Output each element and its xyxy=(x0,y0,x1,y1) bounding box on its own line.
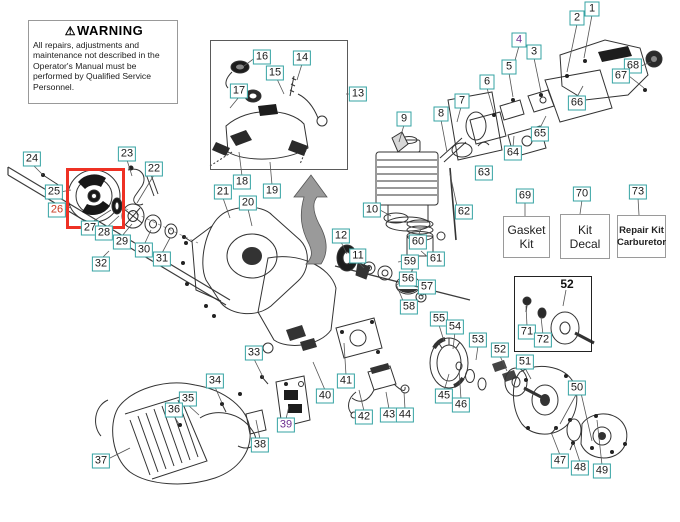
part-label-20[interactable]: 20 xyxy=(239,196,257,211)
warning-text: All repairs, adjustments and maintenance… xyxy=(33,40,175,92)
part-label-9[interactable]: 9 xyxy=(397,112,412,127)
part-label-21[interactable]: 21 xyxy=(214,185,232,200)
part-label-63[interactable]: 63 xyxy=(475,166,493,181)
part-label-40[interactable]: 40 xyxy=(316,389,334,404)
part-label-10[interactable]: 10 xyxy=(363,203,381,218)
crankcase-cover xyxy=(513,366,576,434)
warning-box: ⚠WARNING All repairs, adjustments and ma… xyxy=(28,20,178,104)
rotation-arrow xyxy=(294,175,327,264)
part-label-33[interactable]: 33 xyxy=(245,346,263,361)
part-label-11[interactable]: 11 xyxy=(349,249,366,264)
part-label-54[interactable]: 54 xyxy=(446,320,464,335)
part-label-47[interactable]: 47 xyxy=(551,454,569,469)
part-label-36[interactable]: 36 xyxy=(165,403,183,418)
part-label-22[interactable]: 22 xyxy=(145,162,163,177)
warning-icon: ⚠ xyxy=(65,24,76,38)
part-label-17[interactable]: 17 xyxy=(230,84,248,99)
part-label-46[interactable]: 46 xyxy=(452,398,470,413)
gear-head-group xyxy=(551,414,627,458)
part-label-15[interactable]: 15 xyxy=(266,66,284,81)
part-label-18[interactable]: 18 xyxy=(233,175,251,190)
part-label-65[interactable]: 65 xyxy=(531,127,549,142)
part-label-42[interactable]: 42 xyxy=(355,410,373,425)
part-label-62[interactable]: 62 xyxy=(455,205,473,220)
part-label-61[interactable]: 61 xyxy=(427,252,445,267)
parts-diagram-page: ⚠WARNING All repairs, adjustments and ma… xyxy=(0,0,680,522)
repair-kit-label-line1: Repair Kit xyxy=(619,225,664,237)
part-label-52[interactable]: 52 xyxy=(491,343,509,358)
part-label-41[interactable]: 41 xyxy=(337,374,355,389)
part-label-49[interactable]: 49 xyxy=(593,464,611,479)
repair-kit-label-line2: Carburetor xyxy=(617,237,666,249)
part-label-60[interactable]: 60 xyxy=(409,235,427,250)
part-label-14[interactable]: 14 xyxy=(293,51,311,66)
kit-decal-box[interactable]: Kit Decal xyxy=(560,214,610,259)
part-label-31[interactable]: 31 xyxy=(153,252,171,267)
starter-assembly xyxy=(68,170,122,222)
part-label-29[interactable]: 29 xyxy=(113,235,131,250)
part-label-44[interactable]: 44 xyxy=(396,408,414,423)
part-label-73[interactable]: 73 xyxy=(629,185,647,200)
part-label-6[interactable]: 6 xyxy=(480,75,495,90)
part-label-26[interactable]: 26 xyxy=(48,203,66,218)
part-label-53[interactable]: 53 xyxy=(469,333,487,348)
part-label-23[interactable]: 23 xyxy=(118,147,136,162)
part-label-24[interactable]: 24 xyxy=(23,152,41,167)
part-label-12[interactable]: 12 xyxy=(332,229,350,244)
part-label-51[interactable]: 51 xyxy=(516,355,534,370)
part-label-39[interactable]: 39 xyxy=(277,418,295,433)
fuel-tank-subdiagram-frame xyxy=(210,40,348,170)
part-label-7[interactable]: 7 xyxy=(455,94,470,109)
part-label-72[interactable]: 72 xyxy=(534,333,552,348)
part-label-50[interactable]: 50 xyxy=(568,381,586,396)
part-label-3[interactable]: 3 xyxy=(527,45,542,60)
crankshaft-subdiagram-frame xyxy=(514,276,592,352)
part-label-30[interactable]: 30 xyxy=(135,243,153,258)
part-label-25[interactable]: 25 xyxy=(45,185,63,200)
part-label-2[interactable]: 2 xyxy=(570,11,585,26)
carburetor-repair-kit-box[interactable]: Repair Kit Carburetor xyxy=(617,215,666,258)
part-label-64[interactable]: 64 xyxy=(504,146,522,161)
part-label-45[interactable]: 45 xyxy=(435,389,453,404)
part-label-32[interactable]: 32 xyxy=(92,257,110,272)
subdiagram-part-number: 52 xyxy=(560,277,573,291)
part-label-37[interactable]: 37 xyxy=(92,454,110,469)
cylinder xyxy=(376,137,456,241)
part-label-56[interactable]: 56 xyxy=(399,272,417,287)
ignition-group xyxy=(336,318,409,418)
part-label-38[interactable]: 38 xyxy=(251,438,269,453)
gasket-kit-label-line1: Gasket xyxy=(507,223,545,237)
gasket-kit-box[interactable]: Gasket Kit xyxy=(503,216,550,258)
part-label-67[interactable]: 67 xyxy=(612,69,630,84)
part-label-4[interactable]: 4 xyxy=(512,33,527,48)
part-label-34[interactable]: 34 xyxy=(206,374,224,389)
part-label-28[interactable]: 28 xyxy=(95,226,113,241)
gasket-kit-label-line2: Kit xyxy=(519,237,533,251)
part-label-48[interactable]: 48 xyxy=(571,461,589,476)
part-label-59[interactable]: 59 xyxy=(401,255,419,270)
part-label-70[interactable]: 70 xyxy=(573,187,591,202)
part-label-66[interactable]: 66 xyxy=(568,96,586,111)
part-label-69[interactable]: 69 xyxy=(516,189,534,204)
part-label-57[interactable]: 57 xyxy=(418,280,436,295)
warning-title: ⚠WARNING xyxy=(33,23,175,39)
part-label-16[interactable]: 16 xyxy=(253,50,271,65)
part-label-1[interactable]: 1 xyxy=(585,2,600,17)
pulley-washer-trail xyxy=(122,204,192,242)
part-label-5[interactable]: 5 xyxy=(502,60,517,75)
part-label-13[interactable]: 13 xyxy=(349,87,367,102)
part-label-58[interactable]: 58 xyxy=(400,300,418,315)
part-label-8[interactable]: 8 xyxy=(434,107,449,122)
kit-decal-label-line1: Kit xyxy=(578,223,592,237)
part-label-19[interactable]: 19 xyxy=(263,184,281,199)
kit-decal-label-line2: Decal xyxy=(570,237,601,251)
